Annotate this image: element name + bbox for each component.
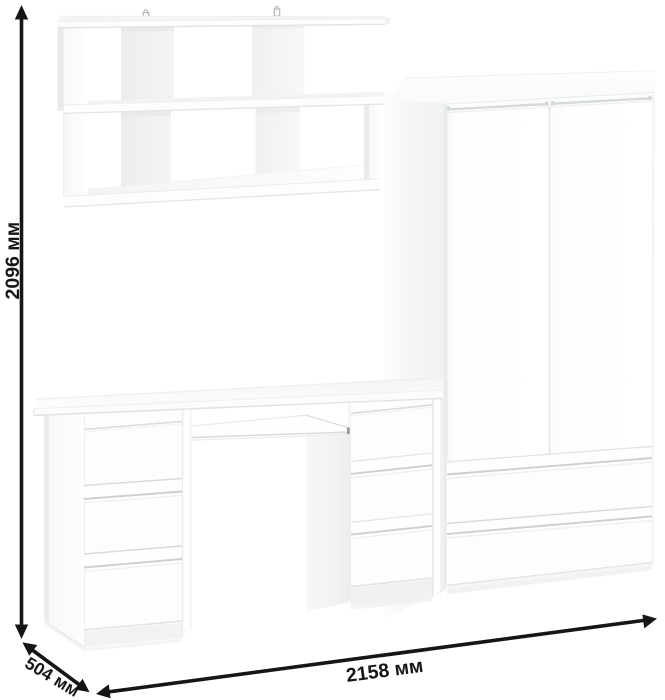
svg-text:2096 мм: 2096 мм (2, 222, 24, 300)
